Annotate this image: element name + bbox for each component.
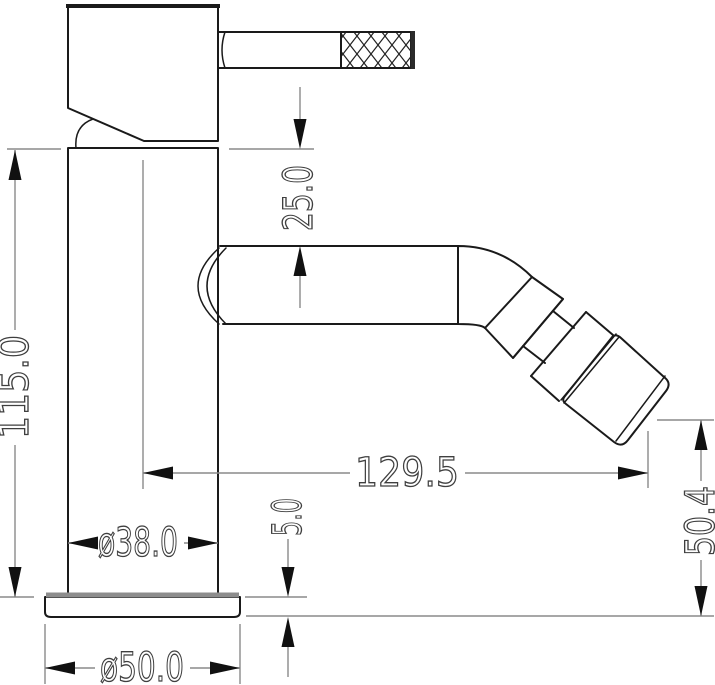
dim-base-diameter: ø50.0	[45, 624, 240, 685]
aerator-head	[531, 312, 669, 445]
arrow-up-icon	[695, 420, 708, 450]
arrow-up-icon	[294, 246, 307, 276]
lever-root-curve	[222, 32, 225, 68]
arrow-up-icon	[9, 150, 22, 180]
dim-outlet-height: 50.4	[246, 420, 715, 616]
technical-drawing-canvas: 115.0 25.0 129.5 50.4 5.0 ø38.	[0, 0, 715, 685]
spout-tube	[220, 246, 458, 324]
bidet-tap-drawing: 115.0 25.0 129.5 50.4 5.0 ø38.	[0, 0, 715, 685]
overall-height-label: 115.0	[0, 335, 38, 439]
cartridge-head	[66, 6, 220, 148]
dim-spout-drop: 25.0	[229, 87, 322, 308]
grip-end-cap	[411, 31, 416, 69]
arrow-up-icon	[282, 617, 295, 647]
arrow-right-icon	[618, 467, 648, 480]
arrow-left-icon	[143, 467, 173, 480]
base-thickness-label: 5.0	[265, 498, 311, 536]
aerator-body	[563, 335, 668, 444]
base-plate	[45, 595, 240, 617]
base-diameter-label: ø50.0	[100, 645, 184, 685]
arrow-down-icon	[282, 567, 295, 597]
body-diameter-label: ø38.0	[98, 520, 178, 566]
knurled-grip	[341, 32, 411, 68]
arrow-down-icon	[695, 586, 708, 616]
arrow-down-icon	[9, 567, 22, 597]
spout-elbow	[458, 246, 563, 358]
dim-body-diameter: ø38.0	[68, 520, 218, 566]
dim-overall-height: 115.0	[0, 149, 61, 597]
lever-handle	[219, 31, 415, 69]
dim-base-thickness: 5.0	[245, 498, 311, 677]
spout-drop-label: 25.0	[276, 165, 322, 231]
arrow-right-icon	[210, 662, 240, 675]
arrow-down-icon	[294, 119, 307, 149]
spout-reach-label: 129.5	[355, 450, 459, 496]
outlet-height-label: 50.4	[678, 486, 715, 556]
arrow-left-icon	[68, 537, 98, 550]
arrow-left-icon	[45, 662, 75, 675]
spout-fillet-arcs	[198, 248, 226, 324]
head-shoulder-arc	[76, 119, 93, 148]
arrow-right-icon	[188, 537, 218, 550]
